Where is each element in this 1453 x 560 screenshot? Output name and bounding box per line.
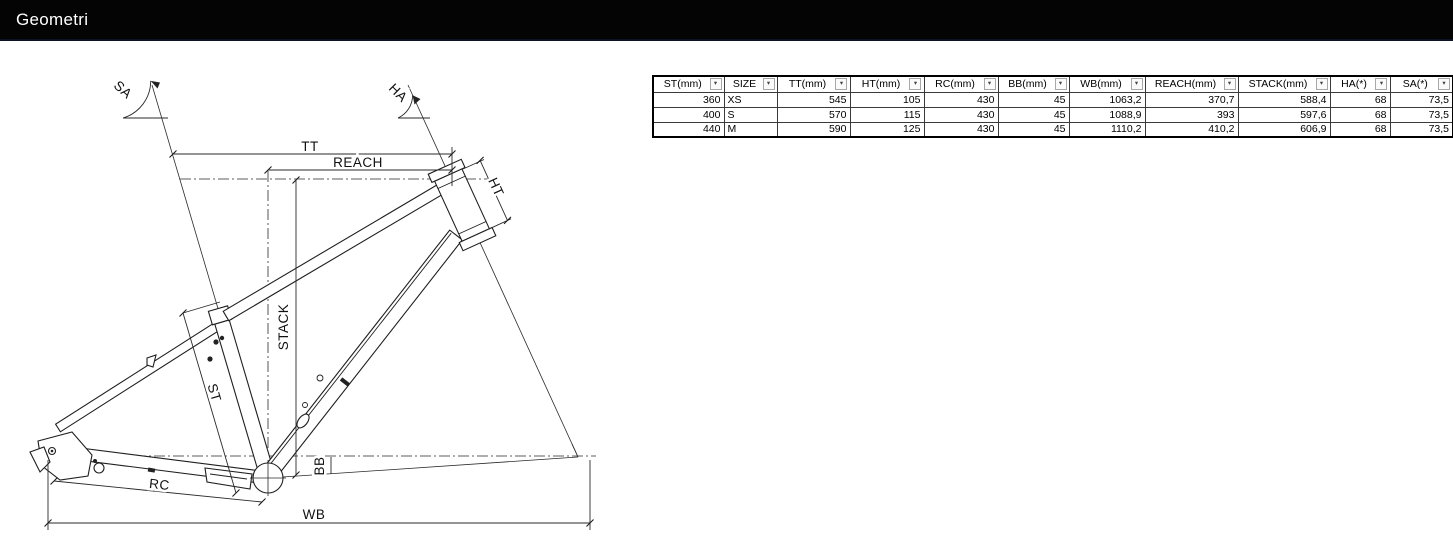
geometry-table: ST(mm)▾SIZE▾TT(mm)▾HT(mm)▾RC(mm)▾BB(mm)▾… <box>652 75 1453 138</box>
filter-dropdown-icon[interactable]: ▾ <box>909 78 921 90</box>
column-header: RC(mm)▾ <box>924 76 998 92</box>
cell: 440 <box>653 122 724 137</box>
filter-dropdown-icon[interactable]: ▾ <box>1316 78 1328 90</box>
cell: 588,4 <box>1238 92 1330 107</box>
column-header: STACK(mm)▾ <box>1238 76 1330 92</box>
cell: 430 <box>924 122 998 137</box>
down-tube-boss-1 <box>317 375 323 381</box>
cell: 68 <box>1330 92 1390 107</box>
cell: 45 <box>998 107 1069 122</box>
cell: 68 <box>1330 122 1390 137</box>
column-header-label: RC(mm) <box>935 78 975 90</box>
cell: 45 <box>998 122 1069 137</box>
seat-tube-boss-2 <box>207 356 212 361</box>
cell: 393 <box>1145 107 1238 122</box>
column-header-label: WB(mm) <box>1080 78 1121 90</box>
filter-dropdown-icon[interactable]: ▾ <box>710 78 722 90</box>
sa-arc-arrowhead <box>151 81 160 89</box>
cell: S <box>724 107 777 122</box>
ha-label: HA <box>386 81 411 106</box>
column-header: SA(*)▾ <box>1390 76 1453 92</box>
head-tube <box>435 169 490 241</box>
column-header-label: SIZE <box>733 78 756 90</box>
ht-extension-top <box>463 160 484 170</box>
column-header-label: REACH(mm) <box>1155 78 1216 90</box>
front-axle-tick <box>572 444 578 457</box>
table-row: 360XS545105430451063,2370,7588,46873,5 <box>653 92 1453 107</box>
column-header-label: ST(mm) <box>664 78 702 90</box>
column-header: TT(mm)▾ <box>777 76 850 92</box>
column-header-label: SA(*) <box>1403 78 1428 90</box>
cell: 1110,2 <box>1069 122 1145 137</box>
filter-dropdown-icon[interactable]: ▾ <box>1224 78 1236 90</box>
cell: 1063,2 <box>1069 92 1145 107</box>
table-row: 440M590125430451110,2410,2606,96873,5 <box>653 122 1453 137</box>
table-row: 400S570115430451088,9393597,66873,5 <box>653 107 1453 122</box>
filter-dropdown-icon[interactable]: ▾ <box>1131 78 1143 90</box>
filter-dropdown-icon[interactable]: ▾ <box>1055 78 1067 90</box>
chainstay-bolt-dot <box>93 459 97 463</box>
st-label: ST <box>205 382 225 404</box>
column-header: HA(*)▾ <box>1330 76 1390 92</box>
cell: 400 <box>653 107 724 122</box>
cell: 73,5 <box>1390 122 1453 137</box>
column-header: REACH(mm)▾ <box>1145 76 1238 92</box>
seat-clamp-bolt <box>220 336 224 340</box>
stack-label: STACK <box>276 304 291 351</box>
cell: 545 <box>777 92 850 107</box>
tt-label: TT <box>301 139 319 154</box>
seat-tube-boss-1 <box>213 339 218 344</box>
filter-dropdown-icon[interactable]: ▾ <box>1375 78 1387 90</box>
column-header: HT(mm)▾ <box>850 76 924 92</box>
cell: 68 <box>1330 107 1390 122</box>
header-row: ST(mm)▾SIZE▾TT(mm)▾HT(mm)▾RC(mm)▾BB(mm)▾… <box>653 76 1453 92</box>
cell: 360 <box>653 92 724 107</box>
rear-axle-center-dot <box>51 450 54 453</box>
rc-label: RC <box>148 476 170 493</box>
geometry-table-container: ST(mm)▾SIZE▾TT(mm)▾HT(mm)▾RC(mm)▾BB(mm)▾… <box>652 75 1453 138</box>
filter-dropdown-icon[interactable]: ▾ <box>835 78 847 90</box>
cell: 430 <box>924 92 998 107</box>
reach-label: REACH <box>333 155 383 170</box>
frame <box>30 159 496 496</box>
cell: 115 <box>850 107 924 122</box>
column-header-label: HT(mm) <box>862 78 900 90</box>
cell: 606,9 <box>1238 122 1330 137</box>
cell: 570 <box>777 107 850 122</box>
dimension-labels: TT REACH STACK ST HT BB RC WB SA HA <box>111 78 507 522</box>
cell: 73,5 <box>1390 107 1453 122</box>
filter-dropdown-icon[interactable]: ▾ <box>1438 78 1450 90</box>
chainstay-pivot <box>94 463 104 473</box>
seat-stay <box>56 318 227 432</box>
down-tube <box>266 230 463 475</box>
cell: 1088,9 <box>1069 107 1145 122</box>
column-header-label: BB(mm) <box>1008 78 1047 90</box>
column-header: SIZE▾ <box>724 76 777 92</box>
cell: 590 <box>777 122 850 137</box>
cell: 125 <box>850 122 924 137</box>
cell: 45 <box>998 92 1069 107</box>
cell: 597,6 <box>1238 107 1330 122</box>
sa-label: SA <box>111 78 135 102</box>
column-header-label: TT(mm) <box>789 78 826 90</box>
column-header-label: STACK(mm) <box>1249 78 1308 90</box>
down-tube-boss-2 <box>303 403 308 408</box>
cell: XS <box>724 92 777 107</box>
wb-label: WB <box>303 507 326 522</box>
column-header: BB(mm)▾ <box>998 76 1069 92</box>
cell: 430 <box>924 107 998 122</box>
filter-dropdown-icon[interactable]: ▾ <box>763 78 775 90</box>
column-header: WB(mm)▾ <box>1069 76 1145 92</box>
table-header: ST(mm)▾SIZE▾TT(mm)▾HT(mm)▾RC(mm)▾BB(mm)▾… <box>653 76 1453 92</box>
cell: 410,2 <box>1145 122 1238 137</box>
table-body: 360XS545105430451063,2370,7588,46873,540… <box>653 92 1453 137</box>
bb-label: BB <box>312 456 327 475</box>
cell: 370,7 <box>1145 92 1238 107</box>
filter-dropdown-icon[interactable]: ▾ <box>984 78 996 90</box>
cell: 105 <box>850 92 924 107</box>
cell: 73,5 <box>1390 92 1453 107</box>
column-header-label: HA(*) <box>1341 78 1367 90</box>
column-header: ST(mm)▾ <box>653 76 724 92</box>
cell: M <box>724 122 777 137</box>
